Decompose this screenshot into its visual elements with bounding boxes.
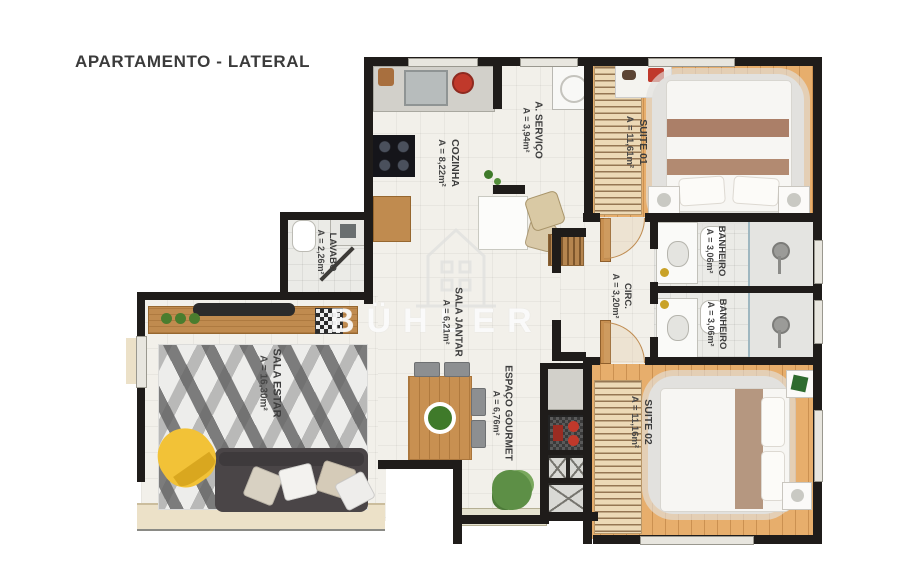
room-area: A = 16,30m²	[256, 348, 269, 417]
room-name: LAVABO	[326, 230, 338, 275]
room-name: SALA JANTAR	[451, 287, 464, 356]
window	[814, 300, 823, 344]
room-label-estar: SALA ESTAR A = 16,30m²	[256, 348, 283, 417]
building-notch	[386, 469, 453, 544]
wall	[540, 363, 548, 521]
shower-glass	[748, 293, 750, 361]
room-name: CIRC.	[621, 274, 633, 319]
sink-icon	[667, 315, 689, 341]
wall	[540, 450, 590, 455]
wall	[645, 357, 822, 365]
window-ledge	[126, 338, 136, 384]
wall	[540, 363, 590, 369]
room-name: COZINHA	[447, 139, 461, 187]
kitchen-plant-icon	[484, 170, 493, 179]
wall	[650, 213, 658, 249]
suite01-bed	[666, 80, 792, 212]
cooktop	[373, 135, 415, 177]
shower-glass	[748, 218, 750, 286]
shoes-icon	[622, 70, 636, 80]
window	[136, 336, 147, 388]
kitchen-sink	[404, 70, 448, 106]
plant-icon	[791, 375, 809, 393]
gold-fixture-icon	[660, 300, 669, 309]
grill-tray	[553, 425, 563, 441]
suite02-nightstand	[782, 482, 812, 510]
room-area: A = 3,94m²	[520, 101, 532, 159]
shower-head-icon	[772, 242, 790, 260]
dining-chair	[471, 420, 486, 448]
room-area: A = 8,22m²	[435, 139, 447, 187]
room-label-banheiro1: BANHEIRO A = 3,06m²	[703, 226, 727, 277]
room-label-jantar: SALA JANTAR A = 6,21m²	[440, 287, 465, 356]
sink-icon	[340, 224, 356, 238]
balcony-edge-line	[137, 529, 385, 531]
kitchen-side-counter	[373, 196, 411, 242]
wall	[493, 57, 502, 109]
lamp-icon	[791, 489, 804, 502]
sofa-back	[219, 452, 364, 466]
room-label-gourmet: ESPAÇO GOURMET A = 6,76m²	[490, 365, 515, 460]
room-name: SUITE 02	[640, 396, 654, 448]
room-label-cozinha: COZINHA A = 8,22m²	[435, 139, 461, 187]
room-label-circ: CIRC. A = 3,20m²	[609, 274, 633, 319]
wall	[540, 512, 598, 521]
window	[408, 58, 478, 67]
watermark-brand: BÜHLER	[330, 302, 544, 341]
window	[648, 58, 735, 67]
wall	[280, 212, 288, 300]
shower-stem	[778, 330, 781, 348]
dining-table	[408, 376, 472, 460]
plant-icon	[189, 313, 200, 324]
wall	[552, 228, 561, 273]
grill-burner-icon	[568, 435, 579, 446]
window	[520, 58, 578, 67]
sofa	[215, 448, 368, 512]
plant-icon	[161, 313, 172, 324]
wall	[280, 212, 372, 220]
bed-blanket-stripe	[735, 389, 763, 509]
room-area: A = 11,61m²	[623, 116, 635, 168]
toilet-icon	[292, 220, 316, 252]
kitchen-pot	[452, 72, 474, 94]
room-label-suite02: SUITE 02 A = 11,16m²	[628, 396, 654, 448]
window	[640, 536, 754, 545]
lamp-icon	[657, 193, 671, 207]
wall	[453, 515, 549, 524]
wall	[137, 292, 288, 300]
wall	[645, 213, 822, 222]
room-name: SUITE 01	[635, 116, 649, 168]
room-name: ESPAÇO GOURMET	[501, 365, 514, 460]
wall	[280, 292, 372, 300]
wall	[584, 57, 593, 217]
cutting-board	[378, 68, 394, 86]
room-name: A. SERVIÇO	[531, 101, 544, 159]
wall	[650, 286, 822, 293]
suite01-nightstand	[778, 186, 810, 215]
room-name: BANHEIRO	[715, 226, 727, 277]
suite01-nightstand	[648, 186, 680, 215]
room-label-lavabo: LAVABO A = 2,26m²	[314, 230, 338, 275]
room-area: A = 3,06m²	[704, 299, 716, 350]
tv-icon	[193, 303, 295, 316]
room-area: A = 2,26m²	[314, 230, 326, 275]
wall	[540, 478, 590, 483]
bed-pillow	[678, 175, 726, 206]
bed-blanket-stripe	[667, 119, 789, 137]
gold-fixture-icon	[660, 268, 669, 277]
bed-pillow	[732, 175, 780, 206]
room-label-suite01: SUITE 01 A = 11,61m²	[623, 116, 649, 168]
room-area: A = 3,20m²	[609, 274, 621, 319]
window	[814, 240, 823, 284]
lamp-icon	[787, 193, 801, 207]
dining-chair	[444, 362, 470, 377]
room-area: A = 3,06m²	[703, 226, 715, 277]
wall	[364, 57, 373, 304]
wall	[378, 460, 462, 469]
window	[814, 410, 823, 482]
room-area: A = 6,76m²	[490, 365, 502, 460]
suite02-bed	[660, 388, 790, 512]
kitchen-plant-icon	[494, 178, 501, 185]
room-area: A = 6,21m²	[440, 287, 452, 356]
plan-title: APARTAMENTO - LATERAL	[75, 52, 310, 72]
gourmet-plant	[492, 470, 532, 510]
table-centerpiece-plant	[428, 406, 452, 430]
sink-icon	[667, 241, 689, 267]
wall	[552, 352, 586, 361]
wall	[583, 213, 600, 222]
suite02-nightstand	[786, 370, 814, 398]
bed-blanket-stripe	[667, 159, 789, 175]
shower-stem	[778, 256, 781, 274]
bed-pillow	[761, 397, 785, 447]
room-area: A = 11,16m²	[628, 396, 640, 448]
sofa-pillow	[278, 462, 319, 501]
room-label-banheiro2: BANHEIRO A = 3,06m²	[704, 299, 728, 350]
grill-burner-icon	[568, 421, 579, 432]
dining-chair	[471, 388, 486, 416]
room-label-servico: A. SERVIÇO A = 3,94m²	[520, 101, 545, 159]
shower-head-icon	[772, 316, 790, 334]
wall	[540, 410, 590, 415]
wall	[493, 185, 525, 194]
room-name: SALA ESTAR	[269, 348, 283, 417]
wall	[453, 460, 462, 544]
gourmet-counter	[546, 368, 588, 410]
plant-icon	[175, 313, 186, 324]
floor-plan-canvas: APARTAMENTO - LATERAL	[0, 0, 900, 569]
room-name: BANHEIRO	[716, 299, 728, 350]
dining-chair	[414, 362, 440, 377]
